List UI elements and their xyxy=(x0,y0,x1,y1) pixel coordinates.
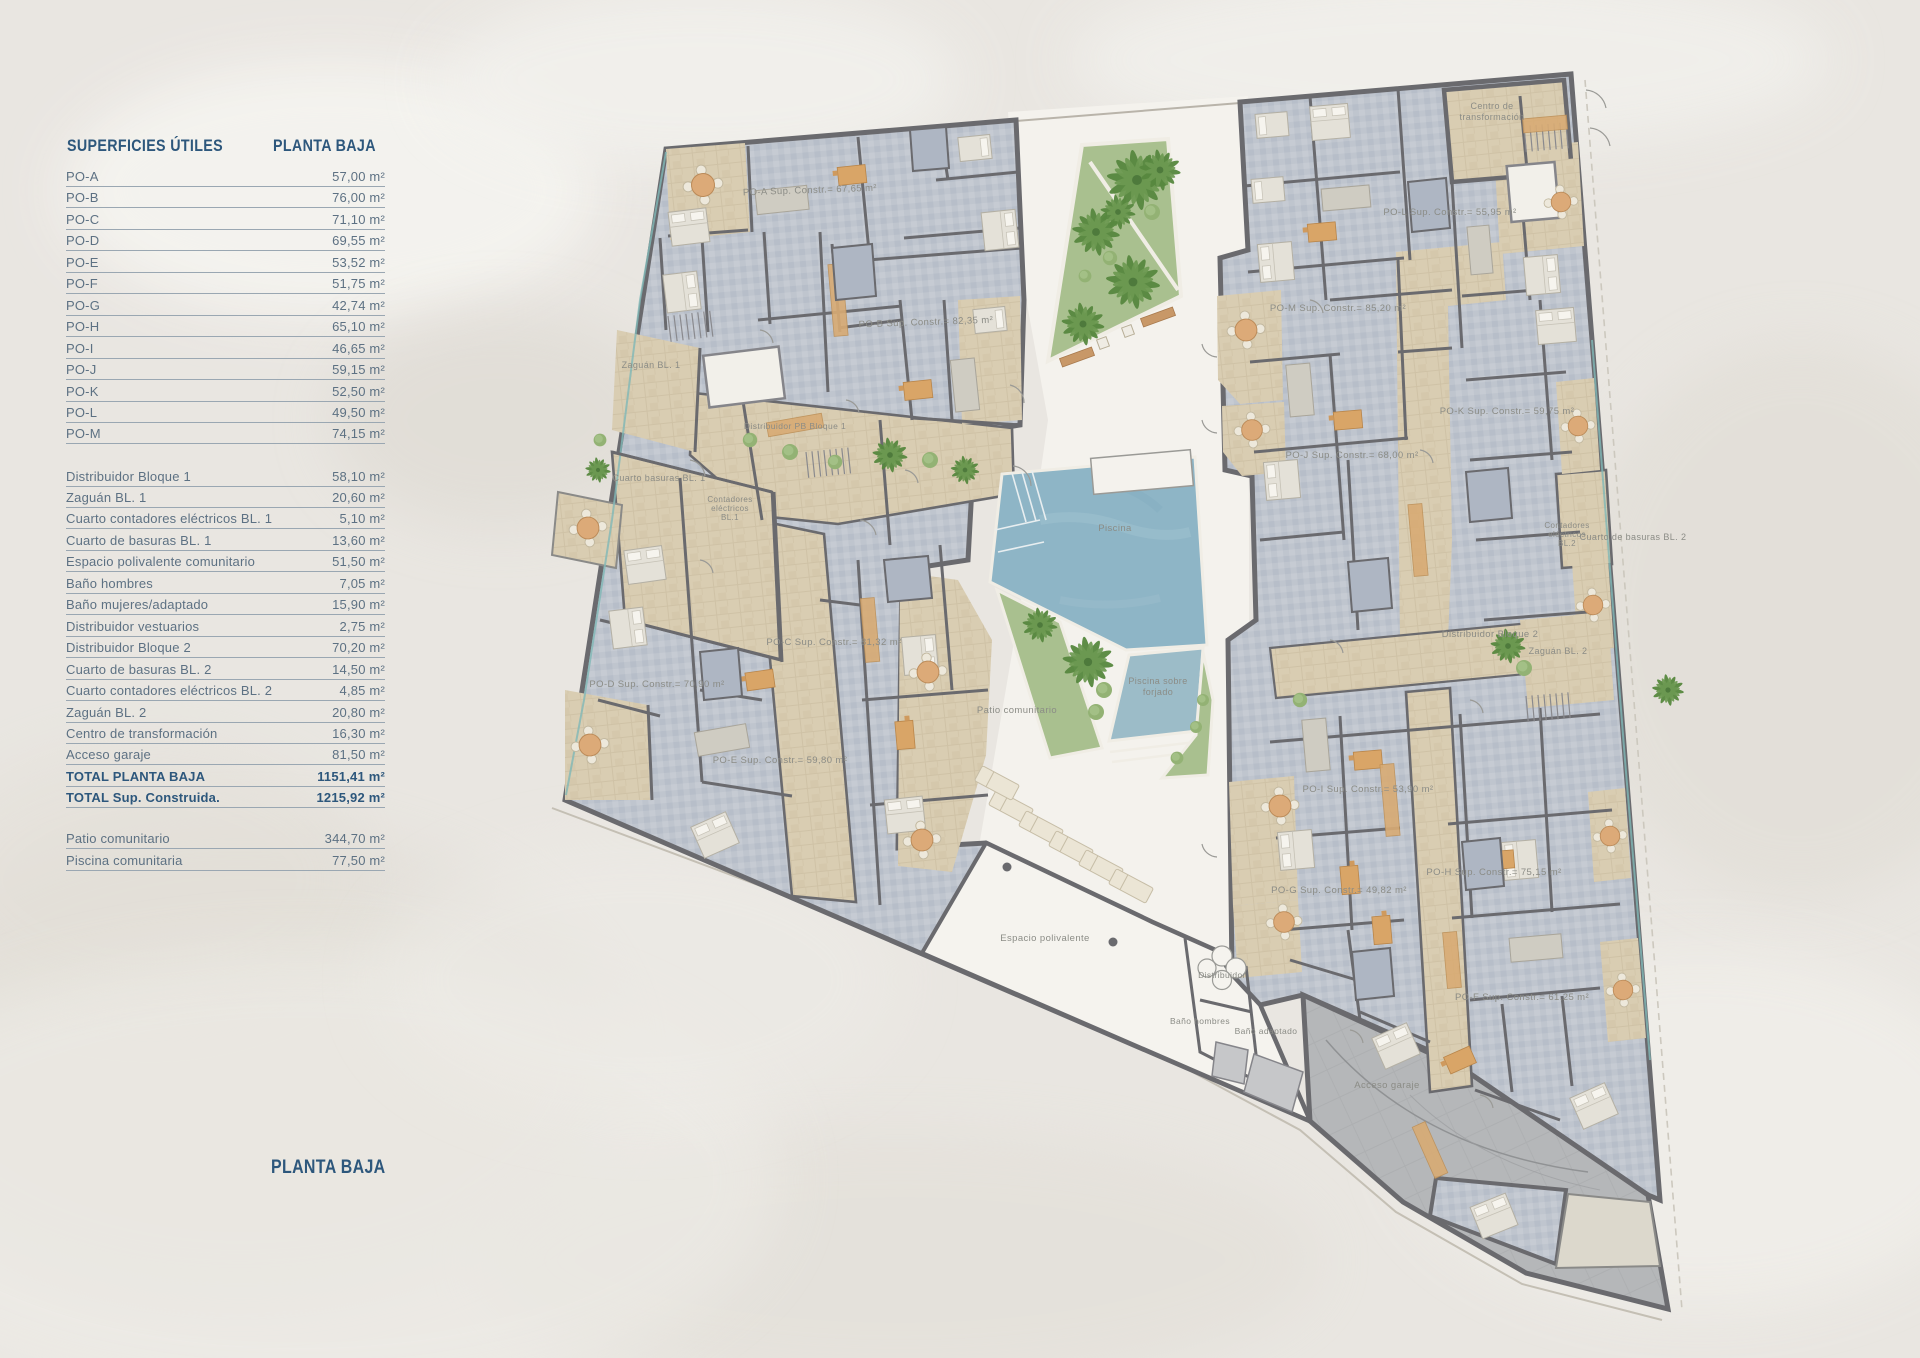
svg-text:eléctricos: eléctricos xyxy=(1548,530,1586,539)
svg-text:Distribuidor Bloque 2: Distribuidor Bloque 2 xyxy=(1442,629,1539,640)
svg-text:Piscina sobre: Piscina sobre xyxy=(1128,676,1187,686)
svg-text:Contadores: Contadores xyxy=(707,495,752,504)
svg-text:Distribuidor: Distribuidor xyxy=(1198,970,1246,980)
svg-text:PO-J Sup. Constr.= 68,00 m²: PO-J Sup. Constr.= 68,00 m² xyxy=(1285,450,1418,461)
svg-text:Espacio polivalente: Espacio polivalente xyxy=(1000,933,1089,944)
svg-text:Cuarto de basuras BL. 2: Cuarto de basuras BL. 2 xyxy=(1580,532,1687,542)
svg-text:PO-M Sup. Constr.= 85,20 m²: PO-M Sup. Constr.= 85,20 m² xyxy=(1270,303,1406,314)
svg-text:Centro de: Centro de xyxy=(1470,101,1513,111)
svg-text:BL.1: BL.1 xyxy=(721,513,739,522)
svg-text:PO-D Sup. Constr.= 70,90 m²: PO-D Sup. Constr.= 70,90 m² xyxy=(589,679,724,690)
svg-text:PO-H Sup. Constr.= 75,15 m²: PO-H Sup. Constr.= 75,15 m² xyxy=(1426,867,1561,878)
svg-text:Distribuidor PB Bloque 1: Distribuidor PB Bloque 1 xyxy=(744,421,846,431)
svg-text:Zaguán BL. 1: Zaguán BL. 1 xyxy=(622,360,681,370)
svg-text:Piscina: Piscina xyxy=(1098,523,1132,534)
svg-text:Contadores: Contadores xyxy=(1544,521,1589,530)
svg-text:BL.2: BL.2 xyxy=(1558,539,1576,548)
svg-text:PO-I Sup. Constr.= 53,90 m²: PO-I Sup. Constr.= 53,90 m² xyxy=(1303,784,1434,795)
svg-text:Acceso garaje: Acceso garaje xyxy=(1354,1080,1419,1091)
svg-text:Baño hombres: Baño hombres xyxy=(1170,1016,1230,1026)
svg-text:PO-G Sup. Constr.= 49,82 m²: PO-G Sup. Constr.= 49,82 m² xyxy=(1271,885,1407,896)
svg-text:Zaguán BL. 2: Zaguán BL. 2 xyxy=(1529,646,1588,656)
svg-text:PO-K Sup. Constr.= 59,75 m²: PO-K Sup. Constr.= 59,75 m² xyxy=(1440,406,1575,417)
svg-text:transformación: transformación xyxy=(1459,112,1524,122)
svg-text:Cuarto basuras BL. 1: Cuarto basuras BL. 1 xyxy=(612,473,705,483)
svg-text:PO-E Sup. Constr.= 59,80 m²: PO-E Sup. Constr.= 59,80 m² xyxy=(713,755,848,766)
svg-text:forjado: forjado xyxy=(1143,687,1173,697)
svg-text:Patio comunitario: Patio comunitario xyxy=(977,705,1057,716)
svg-text:Baño adaptado: Baño adaptado xyxy=(1235,1026,1298,1036)
svg-text:PO-C Sup. Constr.= 81,32 m²: PO-C Sup. Constr.= 81,32 m² xyxy=(766,637,901,648)
svg-text:eléctricos: eléctricos xyxy=(711,504,749,513)
svg-text:PO-L Sup. Constr.= 55,95 m²: PO-L Sup. Constr.= 55,95 m² xyxy=(1383,207,1516,218)
svg-text:PO-F Sup. Constr.= 61,25 m²: PO-F Sup. Constr.= 61,25 m² xyxy=(1455,992,1589,1003)
